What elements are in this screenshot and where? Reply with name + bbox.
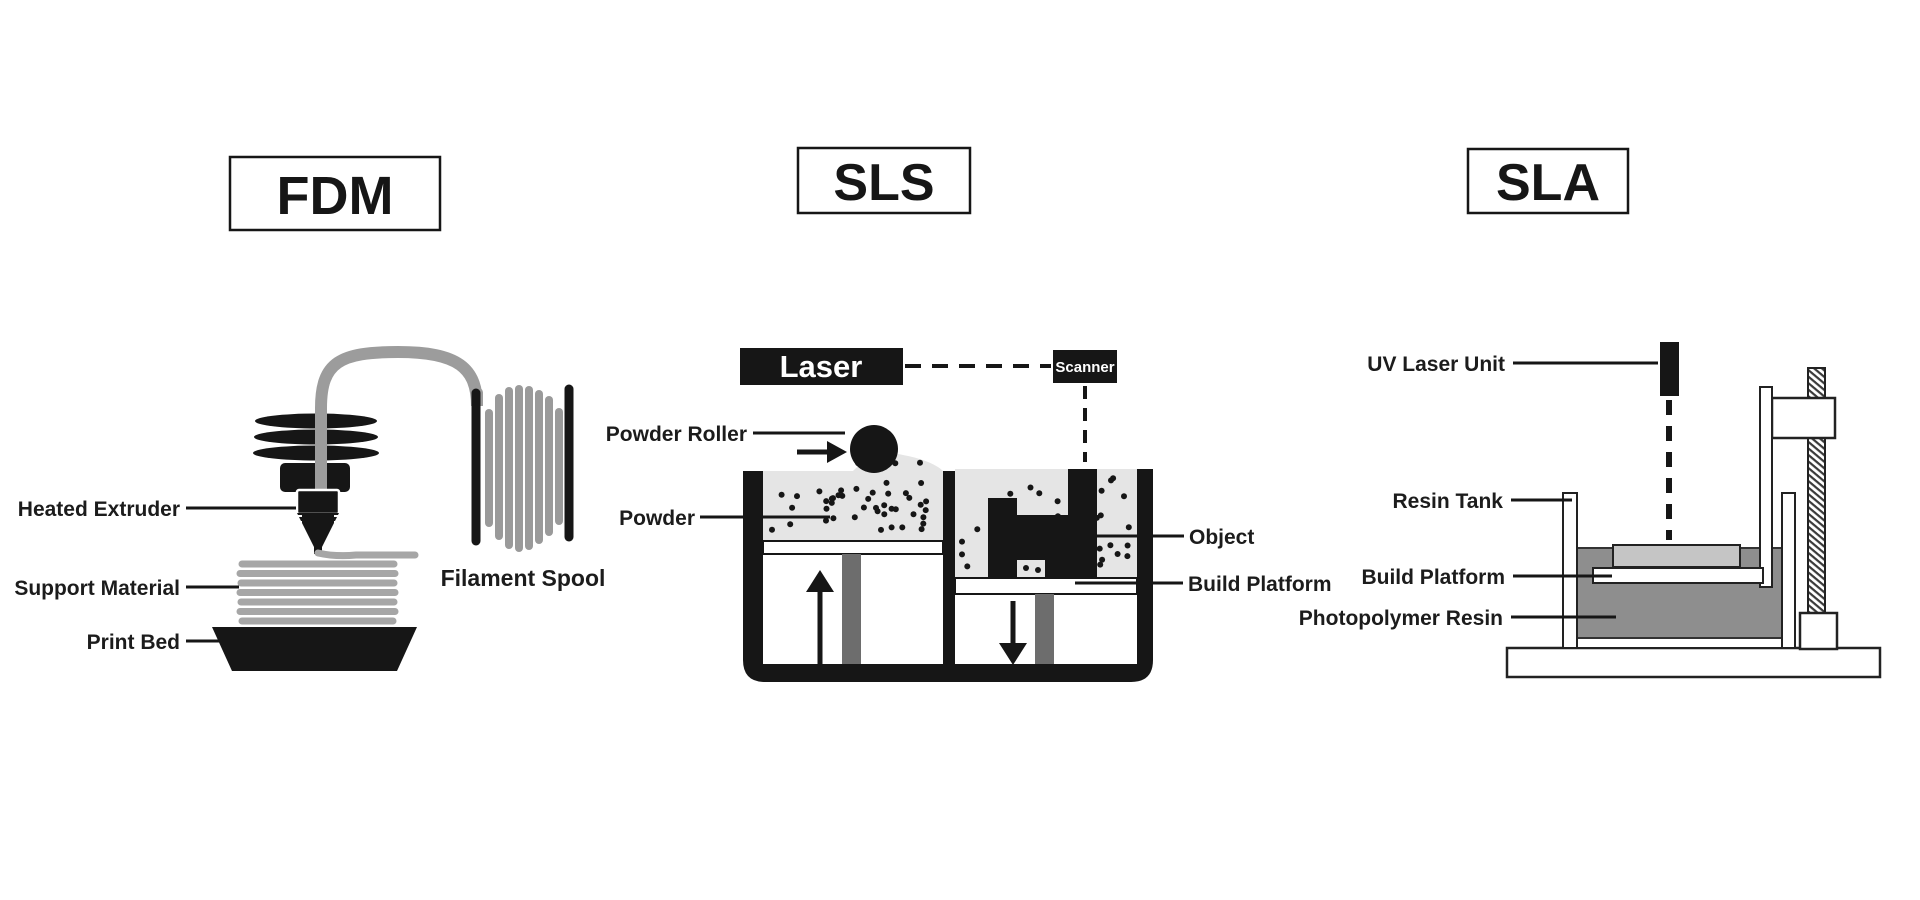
- spool-windings: [489, 389, 559, 548]
- powder-dot: [830, 515, 836, 521]
- sls-title: SLS: [833, 154, 934, 212]
- filament-spool: [476, 389, 569, 548]
- resin-tank-wall-right: [1782, 493, 1795, 648]
- powder-dot: [1124, 553, 1130, 559]
- powder-dot: [964, 563, 970, 569]
- platform-arm: [1760, 387, 1772, 587]
- powder-dot: [816, 488, 822, 494]
- build-platform-sla: [1593, 568, 1763, 583]
- powder-dot: [959, 539, 965, 545]
- screw-foot: [1800, 613, 1837, 649]
- powder-dot: [899, 524, 905, 530]
- powder-dot: [920, 514, 926, 520]
- powder-dot: [779, 492, 785, 498]
- powder-dot: [1110, 475, 1116, 481]
- powder-dot: [1107, 542, 1113, 548]
- carriage-bracket: [1772, 398, 1835, 438]
- nozzle-cone: [297, 513, 339, 547]
- powder-dot: [1023, 565, 1029, 571]
- powder-dot: [873, 505, 879, 511]
- print-bed-label: Print Bed: [87, 631, 180, 654]
- resin-tank-label: Resin Tank: [1393, 490, 1504, 513]
- powder-dot: [923, 507, 929, 513]
- powder-dot: [1099, 557, 1105, 563]
- object-powder-pocket: [1017, 560, 1045, 577]
- uv-laser-label: UV Laser Unit: [1367, 353, 1505, 376]
- powder-dot: [906, 495, 912, 501]
- powder-dot: [787, 521, 793, 527]
- build-piston: [1035, 594, 1054, 664]
- scanner-label: Scanner: [1055, 359, 1114, 376]
- powder-dot: [852, 514, 858, 520]
- powder-dot: [1007, 491, 1013, 497]
- photopolymer-resin-label: Photopolymer Resin: [1299, 607, 1503, 630]
- powder-dot: [1035, 567, 1041, 573]
- heated-extruder-label: Heated Extruder: [18, 498, 180, 521]
- sls-panel: SLS Laser Scanner: [606, 148, 1332, 682]
- powder-dot: [1098, 512, 1104, 518]
- powder-dot: [917, 460, 923, 466]
- fresh-strand: [318, 553, 415, 556]
- powder-dot: [959, 551, 965, 557]
- powder-dot: [911, 511, 917, 517]
- powder-label: Powder: [619, 507, 695, 530]
- powder-dot: [878, 527, 884, 533]
- powder-dot: [918, 480, 924, 486]
- powder-dot: [889, 524, 895, 530]
- laser-label: Laser: [780, 349, 863, 384]
- powder-dot: [853, 486, 859, 492]
- powder-dot: [836, 492, 842, 498]
- resin-tank-wall-left: [1563, 493, 1577, 648]
- powder-dot: [881, 502, 887, 508]
- powder-roller-label: Powder Roller: [606, 423, 747, 446]
- powder-dot: [789, 505, 795, 511]
- powder-dot: [881, 511, 887, 517]
- filament-spool-label: Filament Spool: [441, 565, 606, 591]
- powder-dot: [1055, 498, 1061, 504]
- powder-dot: [829, 500, 835, 506]
- nozzle-body: [297, 490, 339, 514]
- powder-dot: [870, 490, 876, 496]
- fdm-title: FDM: [277, 166, 394, 226]
- powder-dot: [769, 527, 775, 533]
- piston-down-arrow: [999, 601, 1027, 665]
- chamber-divider: [943, 471, 955, 664]
- build-platform-sls: [955, 578, 1137, 594]
- build-platform-label-sla: Build Platform: [1361, 566, 1505, 589]
- printing-technologies-diagram: FDM: [0, 0, 1920, 900]
- powder-dot: [919, 526, 925, 532]
- powder-dot: [1126, 524, 1132, 530]
- print-bed: [212, 627, 417, 671]
- roller-direction-arrow: [797, 441, 847, 463]
- sla-title: SLA: [1496, 154, 1600, 212]
- powder-dot: [1036, 490, 1042, 496]
- uv-laser-unit: [1660, 342, 1679, 396]
- support-material-label: Support Material: [14, 577, 180, 600]
- sla-panel: SLA UV Laser Unit Resin Tank Build Platf…: [1299, 149, 1880, 677]
- powder-dot: [794, 493, 800, 499]
- powder-roller: [850, 425, 898, 473]
- powder-dot: [861, 505, 867, 511]
- object-label: Object: [1189, 526, 1254, 549]
- powder-dot: [1121, 493, 1127, 499]
- powder-dot: [918, 502, 924, 508]
- powder-dot: [1099, 488, 1105, 494]
- powder-dot: [824, 506, 830, 512]
- build-platform-label-sls: Build Platform: [1188, 573, 1332, 596]
- powder-dot: [920, 521, 926, 527]
- powder-dot: [1125, 543, 1131, 549]
- support-material-stack: [240, 553, 415, 621]
- powder-dot: [885, 491, 891, 497]
- powder-dot: [823, 498, 829, 504]
- feed-platform: [763, 541, 943, 554]
- powder-dot: [884, 480, 890, 486]
- diagram-canvas: FDM: [0, 0, 1920, 900]
- powder-dot: [865, 496, 871, 502]
- machine-base: [1507, 648, 1880, 677]
- feed-piston: [842, 554, 861, 664]
- fdm-panel: FDM: [14, 157, 605, 671]
- powder-dot: [974, 526, 980, 532]
- powder-dot: [893, 506, 899, 512]
- piston-up-arrow: [806, 570, 834, 664]
- cured-object: [1613, 545, 1740, 567]
- powder-dot: [1028, 485, 1034, 491]
- powder-dot: [1115, 551, 1121, 557]
- heated-extruder-nozzle: [295, 490, 341, 554]
- powder-dot: [923, 498, 929, 504]
- powder-dot: [1097, 546, 1103, 552]
